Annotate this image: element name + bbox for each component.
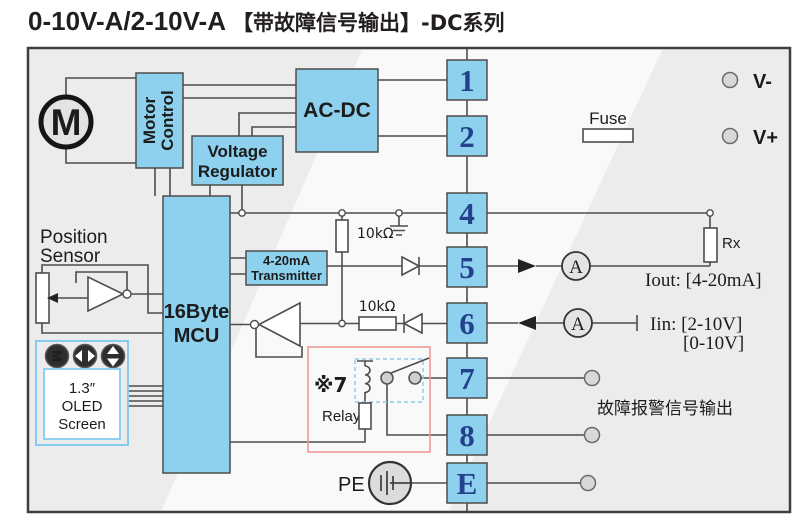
v-plus-label: V+ — [753, 127, 778, 149]
svg-text:Screen: Screen — [58, 416, 106, 433]
svg-text:[0-10V]: [0-10V] — [683, 333, 744, 354]
svg-text:5: 5 — [459, 250, 475, 285]
svg-text:4-20mA: 4-20mA — [263, 253, 311, 268]
rx-label: Rx — [722, 235, 741, 252]
position-sensor-label: Position — [40, 227, 108, 248]
iout-label: Iout: [4-20mA] — [645, 270, 762, 291]
fault-output-label: 故障报警信号输出 — [597, 399, 733, 419]
fault-node-8 — [585, 428, 600, 443]
left-right-button — [74, 345, 97, 368]
svg-text:Sensor: Sensor — [40, 246, 101, 267]
menu-button-glyph: M — [49, 350, 65, 362]
svg-text:Control: Control — [158, 90, 177, 150]
fault-node-7 — [585, 371, 600, 386]
svg-text:1: 1 — [459, 63, 475, 98]
wiring-diagram-page: 0-10V-A/2-10V-A 【带故障信号输出】 -DC系列 — [0, 0, 800, 518]
junction-dot — [339, 320, 345, 326]
pullup-resistor-label: 10kΩ — [357, 226, 394, 242]
circuit-diagram: M Motor Control Voltage Regulator AC-DC … — [0, 0, 800, 518]
menu-button: M — [46, 345, 69, 368]
pullup-resistor-icon — [336, 220, 348, 252]
oled-size: 1.3″ — [69, 380, 96, 397]
opamp-output-node — [251, 321, 259, 329]
svg-text:16Byte: 16Byte — [164, 301, 230, 323]
svg-text:A: A — [569, 257, 583, 278]
pe-label: PE — [338, 474, 365, 496]
v-minus-label: V- — [753, 71, 772, 93]
svg-text:Voltage: Voltage — [207, 142, 267, 161]
junction-dot — [239, 210, 245, 216]
v-plus-node — [723, 129, 738, 144]
svg-text:AC-DC: AC-DC — [303, 99, 371, 122]
svg-text:2: 2 — [459, 119, 475, 154]
junction-dot — [396, 210, 402, 216]
terminal-block: 1 2 4 5 6 7 8 E — [447, 60, 487, 503]
svg-text:OLED: OLED — [62, 398, 103, 415]
ps-opamp-output-node — [123, 290, 131, 298]
relay-note: ※7 — [314, 373, 347, 397]
series-resistor-label: 10kΩ — [359, 299, 396, 315]
svg-text:A: A — [571, 314, 585, 335]
iin-label: Iin: [2-10V] — [650, 314, 742, 335]
rx-resistor-icon — [704, 228, 717, 262]
series-resistor-icon — [359, 317, 396, 330]
motor-control-label: Motor Control — [140, 90, 177, 150]
svg-text:6: 6 — [459, 306, 475, 341]
svg-text:Transmitter: Transmitter — [251, 268, 322, 283]
svg-text:Regulator: Regulator — [198, 162, 278, 181]
svg-text:7: 7 — [459, 361, 475, 396]
earth-node — [581, 476, 596, 491]
v-minus-node — [723, 73, 738, 88]
junction-dot — [339, 210, 345, 216]
motor-letter: M — [51, 102, 82, 143]
svg-text:MCU: MCU — [174, 325, 220, 347]
svg-text:E: E — [457, 466, 478, 501]
svg-text:Motor: Motor — [140, 97, 159, 145]
pe-earth-icon — [369, 462, 411, 504]
junction-dot — [707, 210, 713, 216]
fuse-label: Fuse — [589, 109, 627, 128]
svg-text:4: 4 — [459, 196, 475, 231]
relay-label: Relay — [322, 408, 361, 425]
svg-text:8: 8 — [459, 418, 475, 453]
fuse-icon — [583, 129, 633, 142]
up-down-button — [102, 345, 125, 368]
